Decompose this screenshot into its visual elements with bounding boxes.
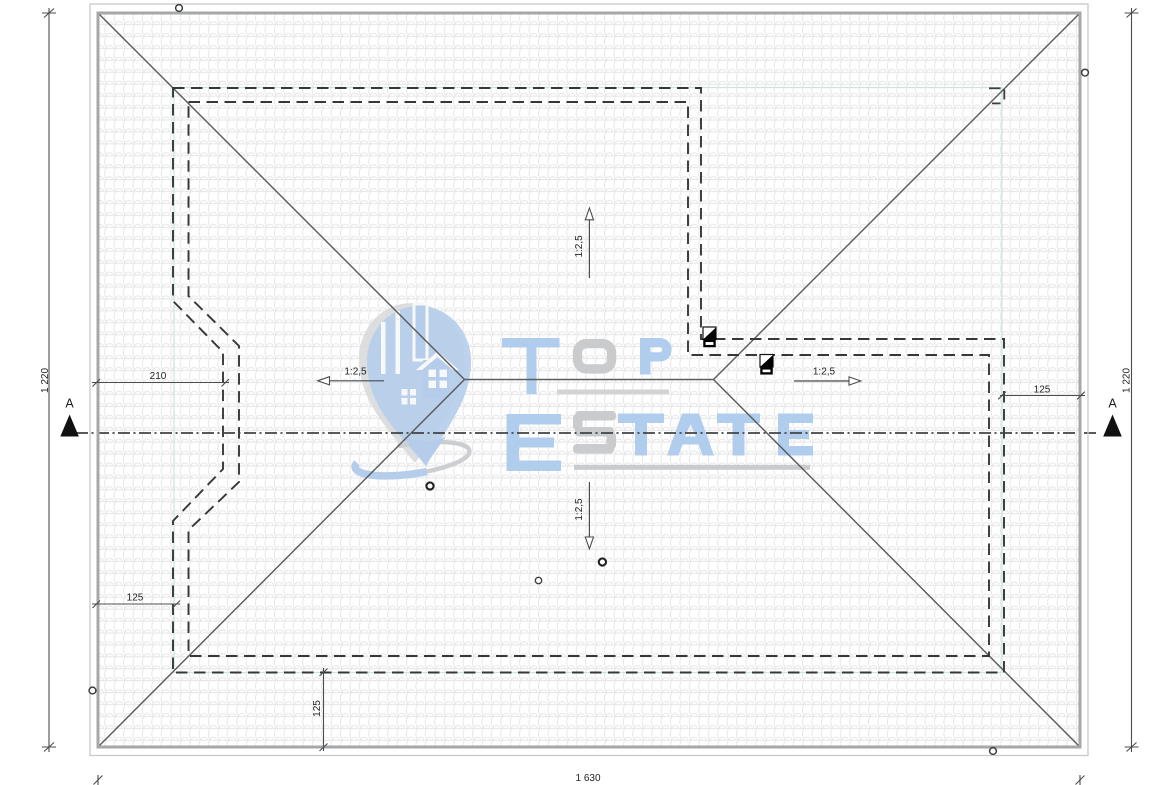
svg-text:1:2,5: 1:2,5 — [344, 367, 367, 378]
svg-text:1:2,5: 1:2,5 — [813, 367, 836, 378]
svg-text:A: A — [1108, 397, 1117, 411]
svg-text:125: 125 — [127, 593, 144, 604]
svg-text:1 220: 1 220 — [40, 368, 51, 393]
svg-text:125: 125 — [312, 700, 323, 717]
svg-text:210: 210 — [150, 371, 167, 382]
svg-text:A: A — [65, 397, 74, 411]
svg-text:1 630: 1 630 — [575, 773, 600, 784]
svg-text:125: 125 — [1034, 385, 1051, 396]
svg-text:1 220: 1 220 — [1122, 368, 1133, 393]
svg-text:1:2,5: 1:2,5 — [574, 498, 585, 521]
svg-text:1:2,5: 1:2,5 — [574, 235, 585, 258]
